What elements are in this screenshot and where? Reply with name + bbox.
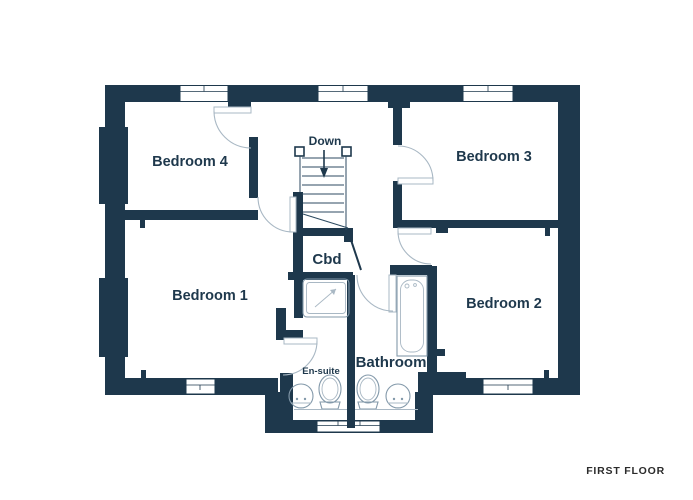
stairs	[295, 147, 351, 230]
wall-bed2-west	[427, 266, 437, 380]
door-cupboard	[351, 240, 361, 270]
stairs-down-label: Down	[309, 134, 342, 148]
room-label-bathroom: Bathroom	[356, 354, 427, 371]
wall-stairs-bottom	[293, 228, 350, 236]
room-label-cupboard: Cbd	[312, 251, 341, 268]
door-bedroom4	[214, 107, 251, 148]
room-label-bedroom1: Bedroom 1	[172, 288, 248, 304]
wall-bed3-left-upper	[393, 102, 402, 145]
stairs-down-arrow-icon	[320, 150, 328, 178]
window-top-3	[463, 86, 513, 102]
wall-bathroom-top	[390, 265, 432, 275]
wall-protrusion-step-left	[265, 392, 283, 433]
door-bedroom3	[398, 146, 433, 184]
wall-shower-left	[294, 280, 303, 318]
room-label-bedroom2: Bedroom 2	[466, 296, 542, 312]
room-label-bedroom3: Bedroom 3	[456, 149, 532, 165]
wall-tick-bed2-top	[545, 228, 550, 236]
wall-tick-bed1-bottom	[141, 370, 146, 378]
window-top-2	[318, 86, 368, 102]
wall-bed3-left-lower	[393, 181, 402, 220]
floor-title: FIRST FLOOR	[586, 465, 665, 477]
wall-tick-bed1-top	[140, 220, 145, 228]
wall-bed2-door-jamb	[436, 228, 448, 233]
floorplan-drawing: Bedroom 4 Bedroom 3 Bedroom 1 Bedroom 2 …	[0, 0, 693, 500]
stairs-newel-left	[295, 147, 304, 156]
bathroom-basin-icon	[386, 384, 410, 408]
window-bottom-right	[483, 379, 533, 394]
wall-tick-bed2-bottom	[544, 370, 549, 378]
door-bedroom1	[258, 197, 296, 232]
stairs-treads	[302, 158, 344, 212]
room-label-ensuite: En-suite	[302, 366, 339, 377]
window-bottom-left	[186, 379, 215, 394]
wall-protrusion-right-block	[418, 372, 466, 395]
bath-icon	[397, 276, 427, 356]
ensuite-toilet-icon	[319, 375, 341, 409]
stairs-break-line	[303, 214, 348, 228]
wall-divider-bed3-bed2	[393, 220, 558, 228]
floorplan-page: Bedroom 4 Bedroom 3 Bedroom 1 Bedroom 2 …	[0, 0, 693, 500]
wall-bed4-right	[249, 137, 258, 198]
wall-right	[558, 85, 580, 395]
wall-nib-bed2	[437, 349, 445, 356]
bathroom-toilet-icon	[357, 375, 379, 409]
stairs-newel-right	[342, 147, 351, 156]
wall-left-chimney-2	[99, 278, 128, 357]
window-top-1	[180, 86, 228, 102]
shower-tray-icon	[303, 279, 349, 317]
door-bedroom2	[398, 228, 431, 264]
wall-divider-ensuite-bathroom	[347, 275, 355, 428]
wall-protrusion-step-right	[415, 392, 433, 433]
wall-left-chimney-1	[99, 127, 128, 204]
door-bathroom	[357, 275, 396, 312]
wall-divider-bed4-bed1	[105, 210, 258, 220]
room-label-bedroom4: Bedroom 4	[152, 154, 228, 170]
